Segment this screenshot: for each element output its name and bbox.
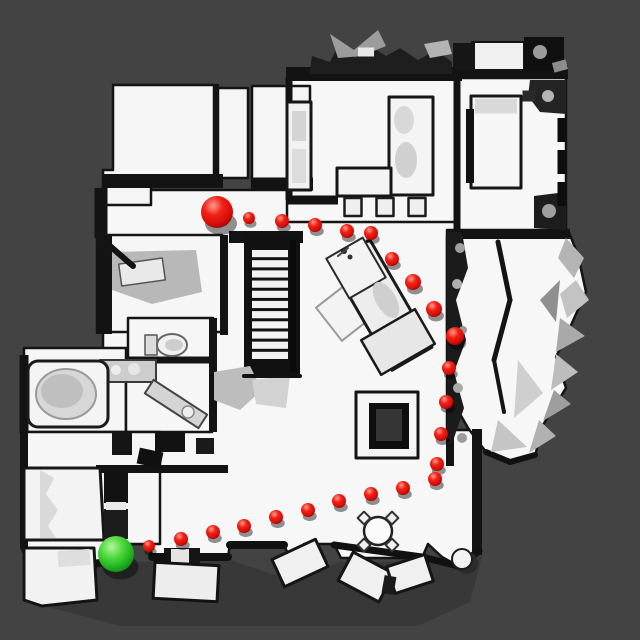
- tv-screen: [376, 409, 402, 441]
- kitchen-unit: [112, 433, 132, 455]
- pillow: [57, 549, 90, 567]
- bed-shadow: [466, 109, 474, 183]
- waypoint-dot: [385, 252, 399, 266]
- wall-clutter: [453, 383, 463, 393]
- stair-tread: [252, 352, 288, 359]
- waypoint-dot: [364, 487, 378, 501]
- window-gap: [558, 150, 567, 174]
- bed: [24, 468, 104, 540]
- waypoint-dot: [434, 427, 448, 441]
- roof-block-b: [218, 88, 248, 178]
- waypoint-dot: [364, 226, 378, 240]
- staircase: [244, 236, 300, 376]
- waypoint-dot: [308, 218, 322, 232]
- waypoint-dot: [428, 472, 442, 486]
- kitchen-unit: [155, 432, 185, 452]
- bench-cushion: [394, 106, 414, 134]
- corner-clutter: [542, 204, 556, 218]
- wall-office-right: [220, 235, 228, 335]
- waypoint-dot: [243, 212, 255, 224]
- stair-tread: [252, 291, 288, 298]
- stair-tread: [252, 260, 288, 267]
- green-sphere-marker: [98, 536, 134, 572]
- toilet-tank: [145, 335, 157, 355]
- wall-dining-stub: [286, 196, 338, 205]
- stair-tread: [252, 270, 288, 277]
- toilet-bowl: [165, 339, 183, 351]
- nightstand: [523, 91, 536, 102]
- stair-tread: [252, 342, 288, 349]
- dining-table: [337, 168, 391, 196]
- vanity-sink: [182, 406, 194, 418]
- wardrobe: [104, 471, 128, 503]
- bench-cushion: [292, 111, 306, 141]
- pillow: [475, 99, 517, 114]
- waypoint-dot: [426, 301, 442, 317]
- stair-tread: [252, 311, 288, 318]
- understairs-clutter: [252, 376, 290, 408]
- stair-tread: [252, 321, 288, 328]
- waypoint-dot: [442, 361, 456, 375]
- waypoint-dot: [332, 494, 346, 508]
- dresser-top: [171, 549, 189, 563]
- waypoint-dot: [206, 525, 220, 539]
- wall-hall-left: [95, 188, 108, 238]
- side-table: [452, 549, 472, 569]
- wall-wing-top: [446, 229, 570, 239]
- dining-chair: [409, 198, 426, 216]
- bench-cushion: [395, 142, 417, 178]
- waypoint-dot: [430, 457, 444, 471]
- wall-clutter: [455, 243, 465, 253]
- bathtub-basin: [41, 374, 83, 408]
- waypoint-dot: [340, 224, 354, 238]
- waypoint-dot: [405, 274, 421, 290]
- stair-tread: [252, 250, 288, 257]
- wardrobe-gap: [106, 502, 126, 510]
- waypoint-dot: [301, 503, 315, 517]
- window-gap: [558, 182, 567, 206]
- waypoint-dot: [446, 327, 464, 345]
- waypoint-dot: [275, 214, 289, 228]
- ceiling-debris: [472, 42, 524, 70]
- dining-chair: [345, 198, 362, 216]
- floorplan-layer: [20, 30, 590, 626]
- waypoint-dot: [237, 519, 251, 533]
- ceiling-debris: [533, 45, 547, 59]
- dining-chair: [377, 198, 394, 216]
- waypoint-dot: [143, 540, 155, 552]
- sink: [111, 365, 121, 375]
- viewport: [0, 0, 640, 640]
- waypoint-dot: [174, 532, 188, 546]
- wall-clutter: [452, 279, 462, 289]
- wall-seam: [213, 84, 219, 178]
- scene-svg: [0, 0, 640, 640]
- window-gap: [558, 118, 567, 142]
- dresser: [153, 562, 219, 601]
- waypoint-dot: [396, 481, 410, 495]
- floor-object: [348, 255, 353, 260]
- wall-bedroom-left: [454, 78, 461, 232]
- stair-tread: [252, 301, 288, 308]
- wall-office-left: [96, 236, 112, 334]
- red-sphere-marker: [201, 196, 233, 228]
- wardrobe: [104, 509, 128, 539]
- waypoint-dot: [439, 395, 453, 409]
- kitchen-unit: [196, 438, 214, 454]
- sink: [128, 363, 140, 375]
- wall-clutter: [457, 433, 467, 443]
- ceiling-debris: [358, 48, 374, 57]
- ceiling-debris: [453, 43, 475, 69]
- bench-cushion: [292, 149, 306, 183]
- corner-clutter: [542, 90, 554, 102]
- stair-tread: [252, 331, 288, 338]
- wall-bottom-right: [472, 429, 482, 555]
- wall-under-block-a: [103, 174, 223, 188]
- stair-tread: [252, 281, 288, 288]
- waypoint-dot: [269, 510, 283, 524]
